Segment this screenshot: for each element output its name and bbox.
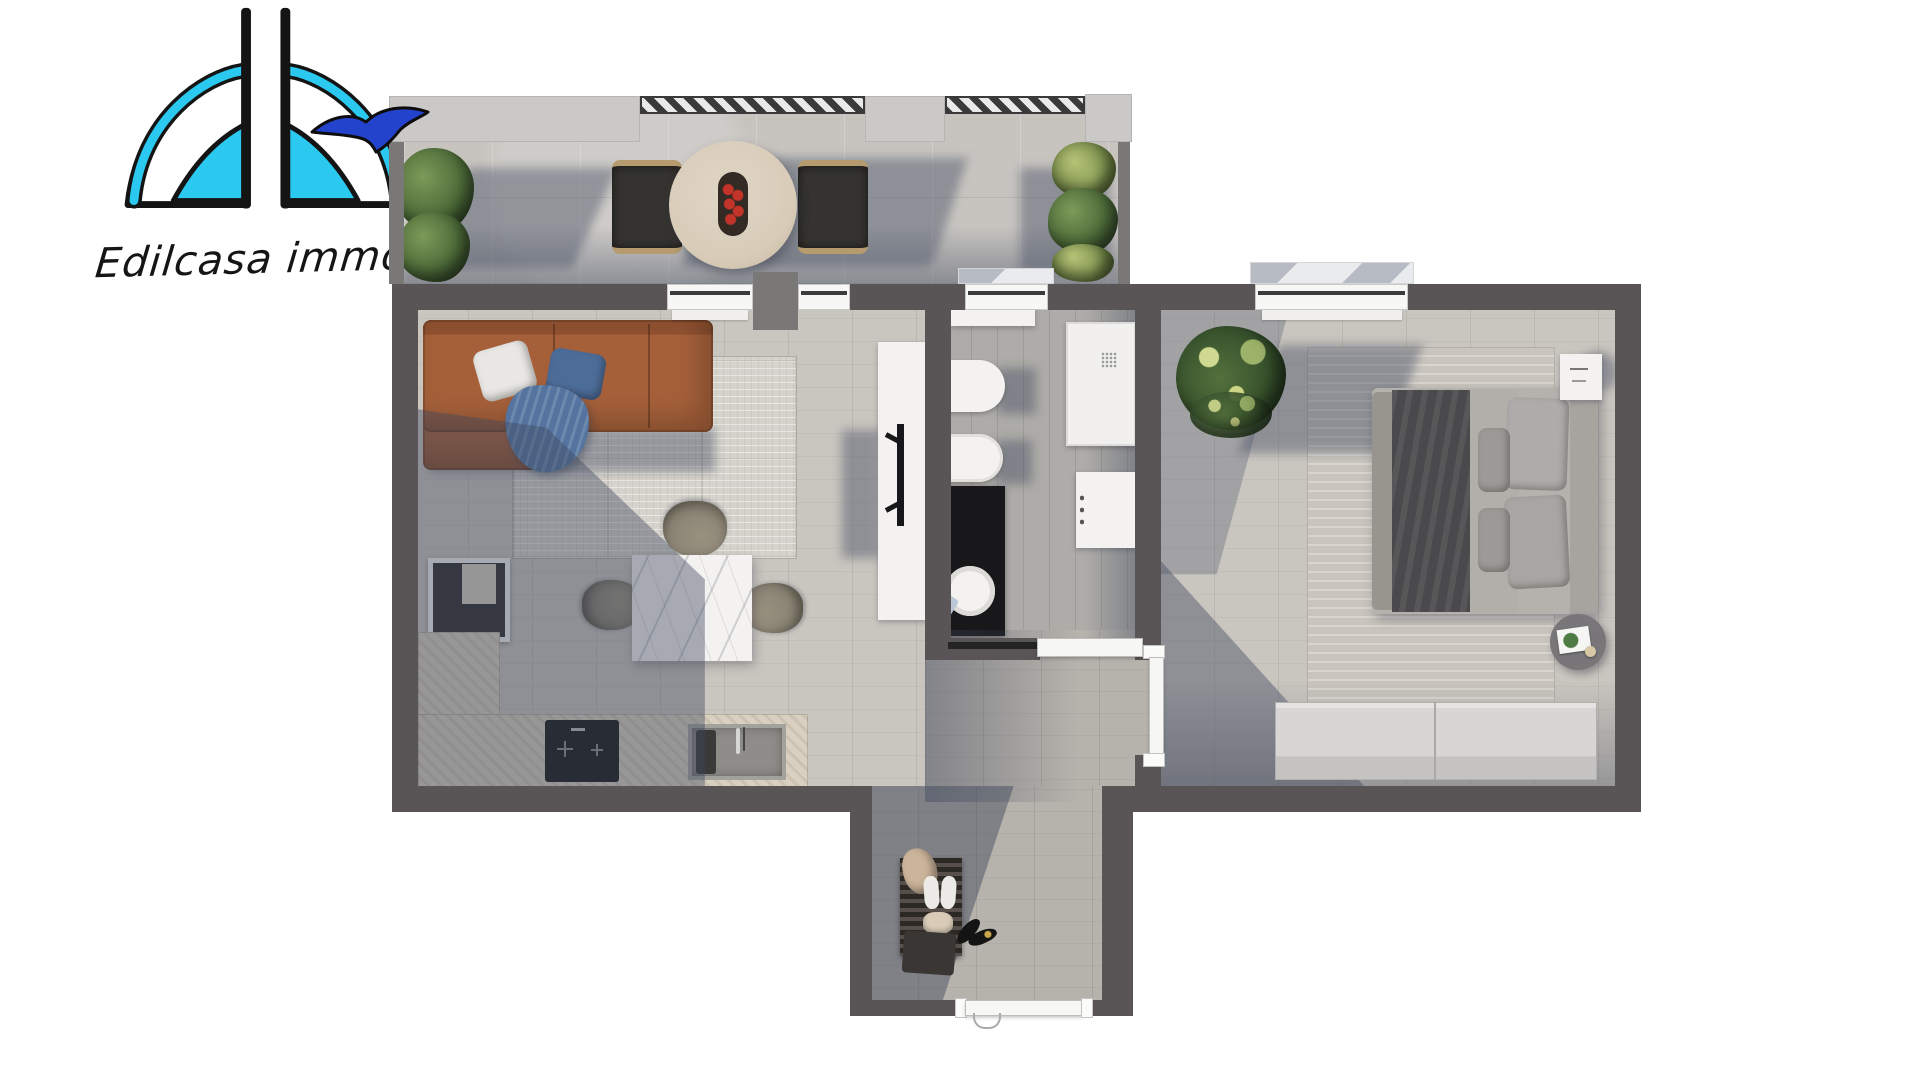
kitchen-corner-cabinet-top <box>462 564 496 604</box>
washing-machine-knobs <box>1080 492 1084 528</box>
bed-cushion-top <box>1478 428 1510 492</box>
balcony-bush-right-bottom <box>1052 244 1114 282</box>
entrance-door-handle <box>973 1013 1001 1029</box>
wall-top-2 <box>850 284 965 310</box>
kitchen-counter-left <box>418 632 500 718</box>
bathroom-door-track <box>948 642 1038 649</box>
apples <box>721 180 745 228</box>
wall-hall-bottom-left <box>850 1000 958 1016</box>
living-window-2 <box>798 284 850 310</box>
bedroom-door-jamb-top <box>1144 646 1164 658</box>
wall-left <box>392 284 418 812</box>
bathroom-sliding-door <box>1038 639 1142 656</box>
bedroom-window <box>1255 284 1408 310</box>
shower-drain <box>1101 352 1117 368</box>
wardrobe <box>1275 702 1597 780</box>
duvet-dark <box>1392 390 1470 612</box>
bedroom-door <box>1150 658 1163 756</box>
wall-bottom-left <box>392 786 872 812</box>
folded-clothes <box>902 930 957 976</box>
bathroom-window <box>965 284 1048 310</box>
slippers <box>923 912 953 934</box>
wall-bathroom-right <box>1135 310 1161 660</box>
balcony-railing-right <box>945 96 1085 114</box>
bed-drape-left <box>1372 392 1394 610</box>
wall-bottom-right <box>1102 786 1641 812</box>
bed-pillow-top <box>1504 397 1569 491</box>
dining-chair-top <box>663 501 727 557</box>
wall-top-3 <box>1048 284 1255 310</box>
balcony-lounge-chair-right <box>798 160 868 254</box>
balcony-bush-left-bottom <box>398 212 470 282</box>
logo-bird-icon <box>300 100 440 160</box>
wall-hall-right <box>1102 786 1133 1016</box>
balcony-edge-right <box>1118 138 1130 284</box>
bedroom-window-ext-sill <box>1250 262 1414 284</box>
wall-right <box>1615 284 1641 812</box>
headboard <box>1570 388 1598 614</box>
balcony-parapet-mid <box>865 96 945 142</box>
washing-machine <box>1076 472 1136 548</box>
bed-cushion-bottom <box>1478 508 1510 572</box>
balcony-parapet-right <box>1085 94 1132 142</box>
sink-basin <box>696 730 716 774</box>
living-window-sill <box>672 310 748 320</box>
entrance-door-jamb-right <box>1082 999 1092 1017</box>
wall-hall-bottom-right <box>1090 1000 1133 1016</box>
pillar <box>753 272 798 330</box>
wall-top-4 <box>1408 284 1641 310</box>
sofa-seam-2 <box>648 324 650 428</box>
marble-dining-table <box>632 555 752 661</box>
coffee-cup <box>1585 646 1596 657</box>
balcony-railing-left <box>640 96 865 114</box>
bedroom-window-sill <box>1262 310 1402 320</box>
bed-pillow-bottom <box>1504 494 1571 589</box>
wall-bathroom-left <box>925 310 951 660</box>
sink-faucet <box>736 728 740 754</box>
living-window-1 <box>667 284 753 310</box>
floorplan-render: Edilcasa immobilia <box>0 0 1920 1080</box>
nightstand <box>1560 354 1602 400</box>
bathroom-window-ext-sill <box>958 268 1054 284</box>
sneaker-left <box>923 876 940 910</box>
wall-top-1 <box>392 284 667 310</box>
entrance-door-jamb-left <box>956 999 966 1017</box>
wardrobe-seam <box>1434 702 1436 780</box>
shower-tray <box>1066 322 1136 446</box>
wall-hall-left <box>850 786 872 1016</box>
bedroom-door-jamb-bottom <box>1144 754 1164 766</box>
induction-cooktop <box>545 720 619 782</box>
